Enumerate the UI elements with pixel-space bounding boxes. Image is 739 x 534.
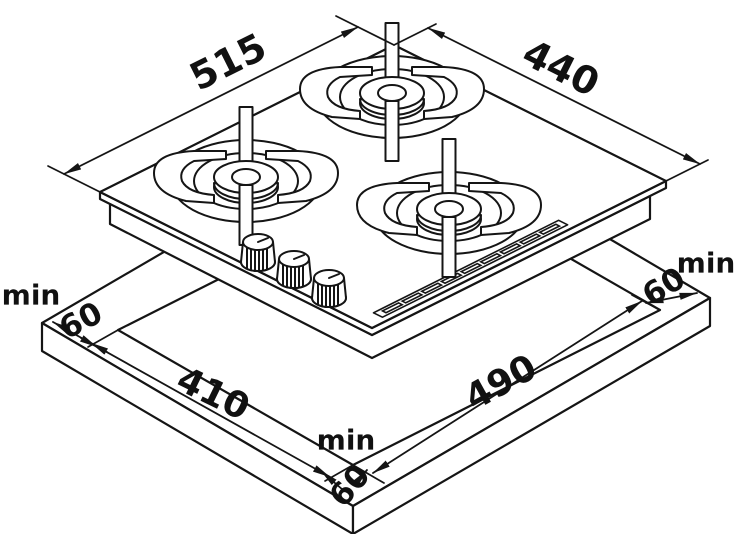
- control-knob-1: [241, 234, 275, 271]
- hob-width-label: 515: [183, 25, 274, 100]
- control-knob-3: [312, 270, 346, 307]
- installation-diagram-page: 515 440 410 490 min 60 min 60 min 60: [0, 0, 739, 534]
- clearance-right-min-label: min: [677, 247, 736, 280]
- clearance-left-min-label: min: [2, 279, 61, 312]
- control-knob-2: [277, 251, 311, 288]
- hob-installation-diagram: 515 440 410 490 min 60 min 60 min 60: [0, 0, 739, 534]
- clearance-front-min-label: min: [317, 424, 376, 457]
